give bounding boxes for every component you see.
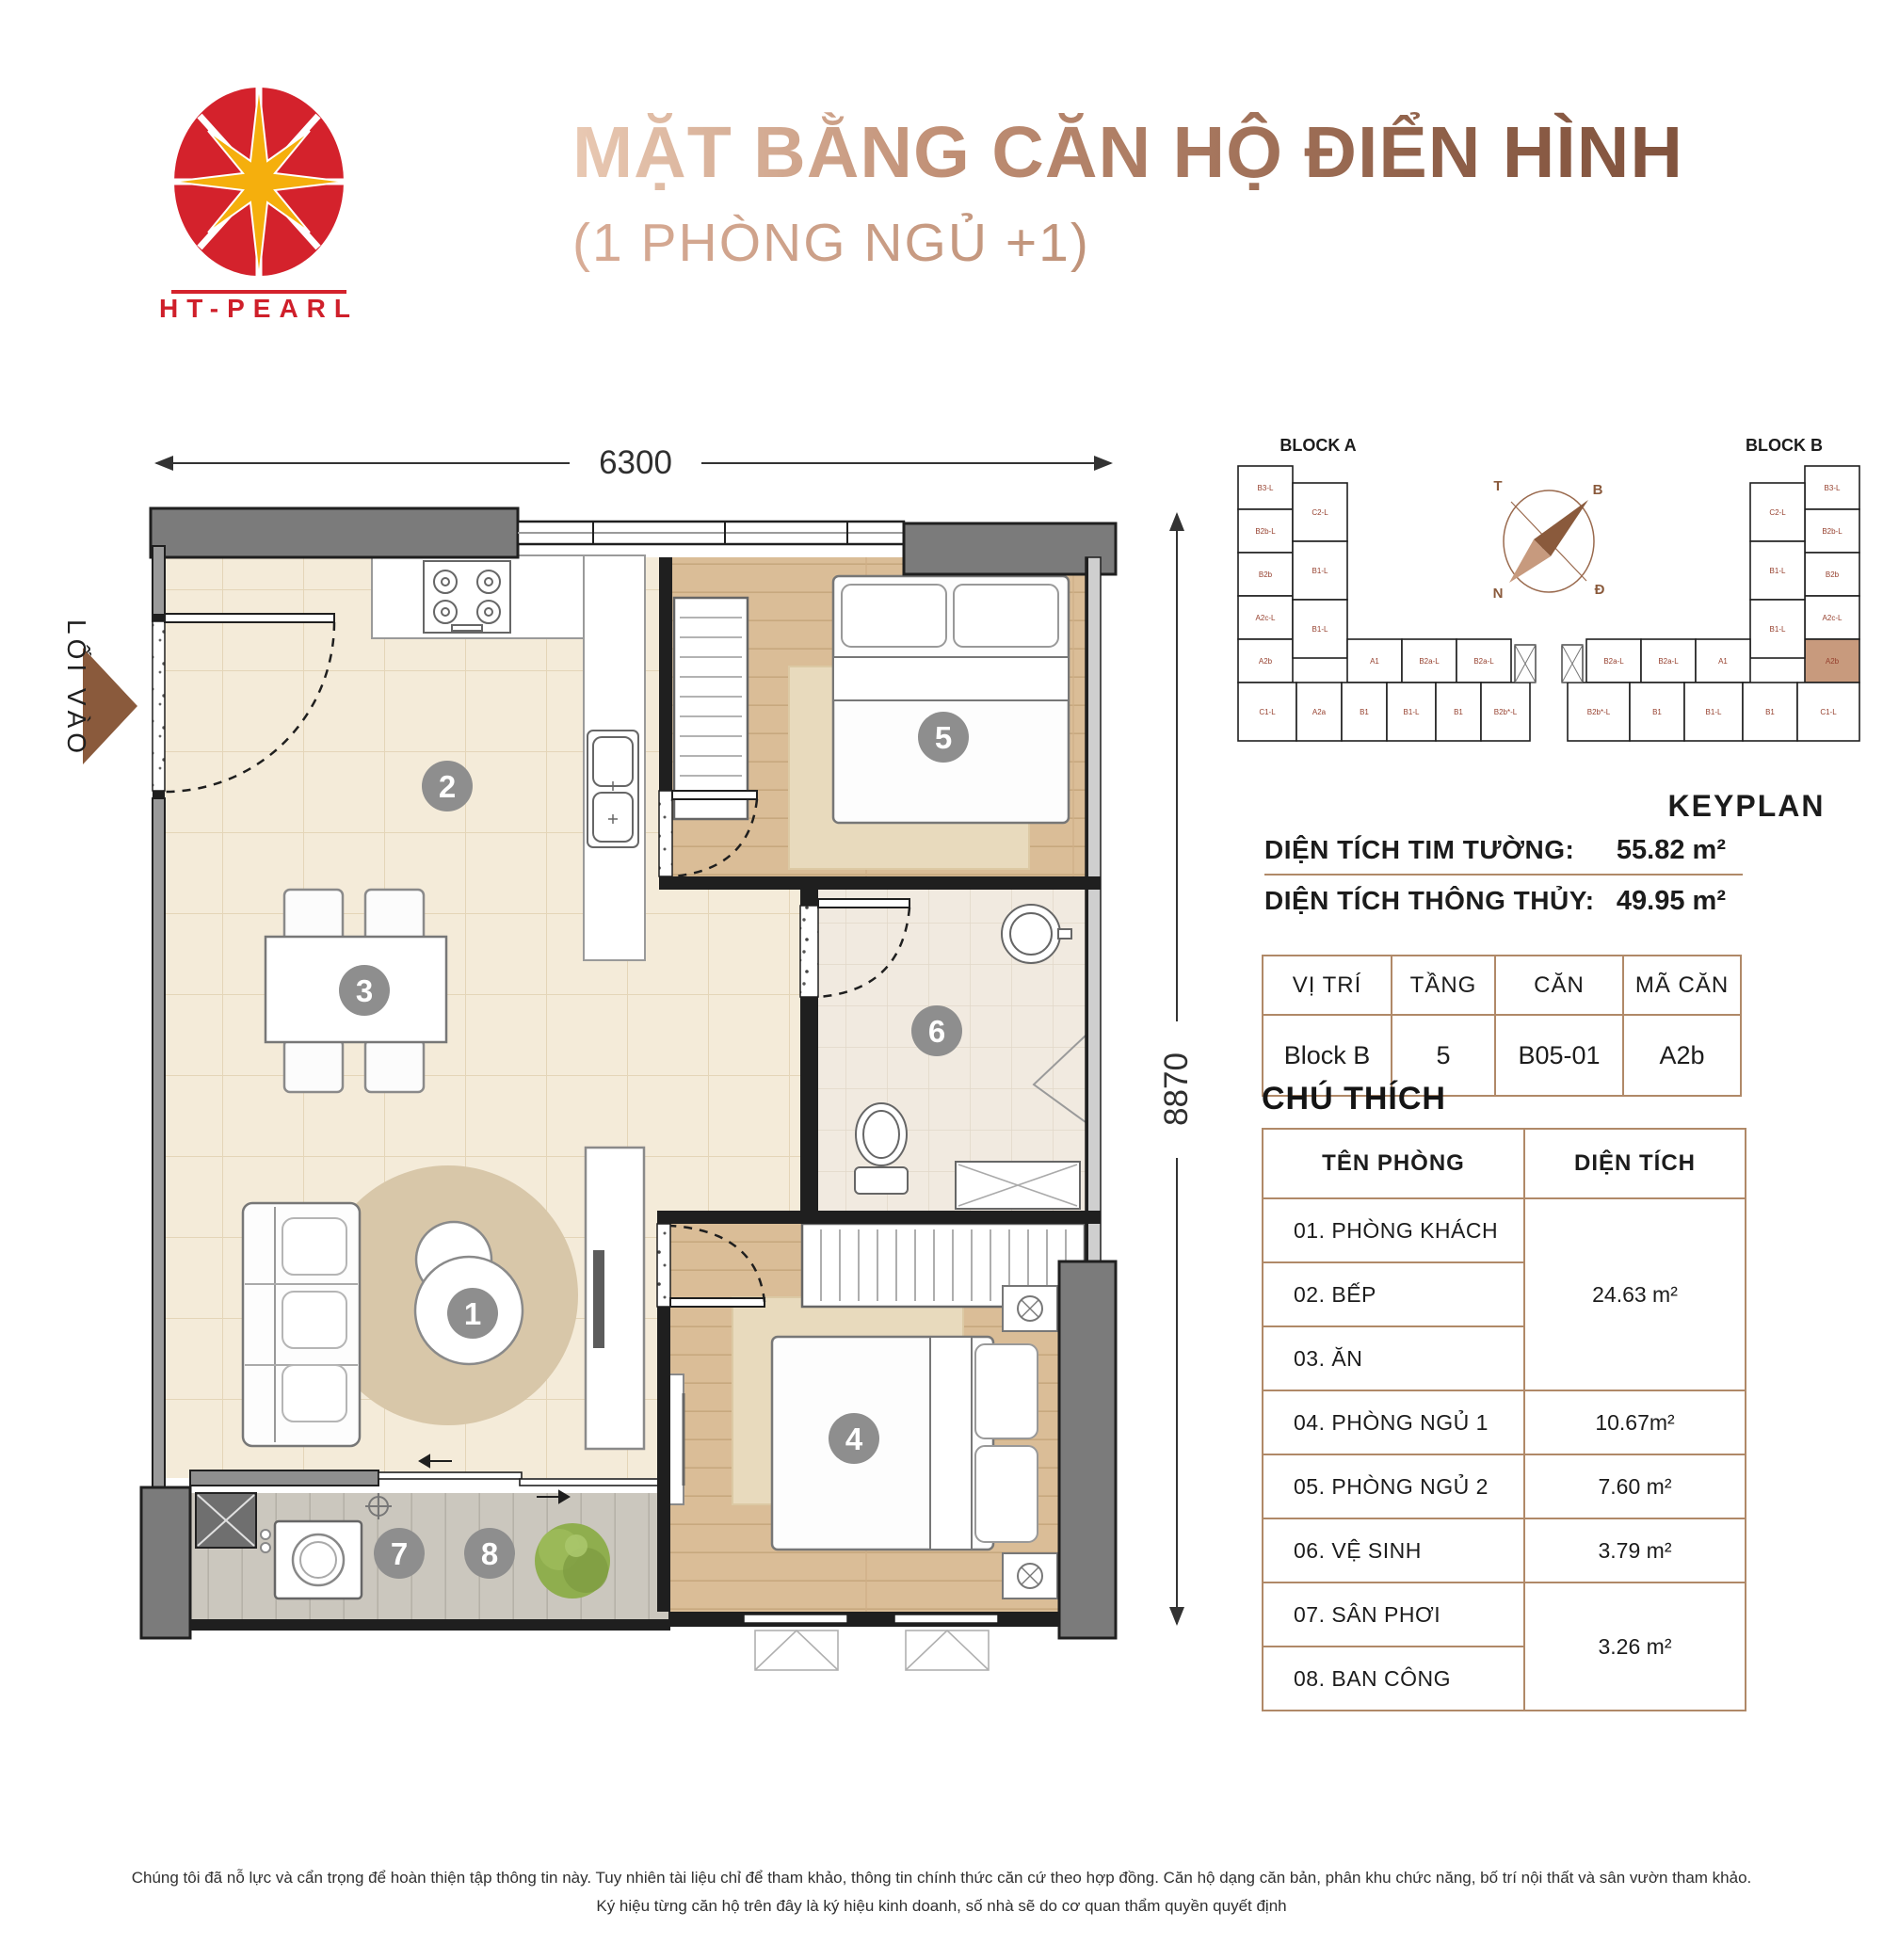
bedroom1-door-leaf bbox=[670, 1298, 764, 1307]
entrance-marker: LỐI VÀO bbox=[62, 619, 137, 764]
svg-text:8: 8 bbox=[481, 1536, 498, 1571]
keyplan: B3-LB2b-LB2bA2c-LA2bC2-LB1-LB1-LA1B2a-LB… bbox=[1219, 428, 1883, 838]
dimension-width: 6300 bbox=[154, 444, 1113, 481]
keyplan-unit-label: B1 bbox=[1360, 708, 1369, 716]
bedroom2-bed bbox=[833, 576, 1069, 823]
bedroom2-wardrobe bbox=[674, 598, 748, 819]
kitchen-sink-icon bbox=[587, 731, 638, 847]
ht-pearl-star-icon: HT-PEARL bbox=[132, 83, 386, 318]
floor-plan-svg: 1 2 3 4 5 6 7 8 6300 8870 LỐI VÀO bbox=[19, 424, 1229, 1671]
keyplan-unit-label: B2a-L bbox=[1603, 657, 1624, 666]
keyplan-unit-label: B2a-L bbox=[1419, 657, 1440, 666]
divider bbox=[1264, 874, 1743, 876]
legend-row: 01. PHÒNG KHÁCH 24.63 m² bbox=[1263, 1198, 1746, 1262]
keyplan-unit-label: B1-L bbox=[1770, 625, 1786, 634]
keyplan-block-b-label: BLOCK B bbox=[1746, 436, 1823, 455]
gross-area-value: 55.82 m² bbox=[1617, 835, 1726, 866]
keyplan-unit-label: B2b bbox=[1259, 570, 1273, 579]
stove-icon bbox=[424, 561, 510, 633]
room-name: 03. ĂN bbox=[1263, 1326, 1524, 1390]
keyplan-unit-label: B1 bbox=[1454, 708, 1463, 716]
keyplan-unit-label: B1-L bbox=[1312, 567, 1328, 575]
page-subtitle: (1 PHÒNG NGỦ +1) bbox=[572, 212, 1825, 274]
legend-title: CHÚ THÍCH bbox=[1262, 1081, 1446, 1117]
compass-letter: N bbox=[1493, 586, 1504, 602]
gross-area-label: DIỆN TÍCH TIM TƯỜNG: bbox=[1264, 835, 1574, 865]
badge-bathroom: 6 bbox=[911, 1005, 962, 1056]
room-name: 05. PHÒNG NGỦ 2 bbox=[1263, 1454, 1524, 1518]
entry-door-leaf bbox=[165, 614, 334, 622]
page-title: MẶT BẰNG CĂN HỘ ĐIỂN HÌNH bbox=[572, 111, 1825, 195]
room-area-merged: 24.63 m² bbox=[1524, 1198, 1746, 1390]
sofa bbox=[243, 1203, 360, 1446]
keyplan-unit-label: B2a-L bbox=[1473, 657, 1494, 666]
area-row-gross: DIỆN TÍCH TIM TƯỜNG: 55.82 m² bbox=[1264, 828, 1743, 872]
title-block: MẶT BẰNG CĂN HỘ ĐIỂN HÌNH (1 PHÒNG NGỦ +… bbox=[572, 111, 1825, 274]
keyplan-unit-label: B3-L bbox=[1258, 484, 1274, 492]
ht-pearl-logo: HT-PEARL bbox=[132, 83, 386, 318]
legend-row: 05. PHÒNG NGỦ 2 7.60 m² bbox=[1263, 1454, 1746, 1518]
keyplan-caption: KEYPLAN bbox=[1668, 789, 1826, 823]
tv-cabinet bbox=[586, 1148, 644, 1449]
svg-text:6300: 6300 bbox=[599, 444, 672, 481]
keyplan-unit-label: A2b bbox=[1826, 657, 1840, 666]
svg-text:2: 2 bbox=[439, 769, 456, 804]
col-header-location: VỊ TRÍ bbox=[1263, 956, 1392, 1015]
disclaimer-line2: Ký hiệu từng căn hộ trên đây là ký hiệu … bbox=[0, 1892, 1883, 1920]
compass-letter: T bbox=[1493, 478, 1502, 494]
keyplan-unit-label: C2-L bbox=[1769, 508, 1786, 517]
col-header-unit: CĂN bbox=[1495, 956, 1623, 1015]
keyplan-unit-label: B2b*-L bbox=[1587, 708, 1611, 716]
badge-bedroom1: 4 bbox=[829, 1413, 879, 1464]
svg-text:1: 1 bbox=[464, 1296, 481, 1331]
room-name: 04. PHÒNG NGỦ 1 bbox=[1263, 1390, 1524, 1454]
plant-icon bbox=[535, 1523, 610, 1599]
svg-text:3: 3 bbox=[356, 973, 373, 1008]
toilet-icon bbox=[855, 1103, 908, 1194]
svg-text:7: 7 bbox=[391, 1536, 408, 1571]
star-icon bbox=[172, 86, 346, 278]
badge-dining: 3 bbox=[339, 965, 390, 1016]
legend-row: 04. PHÒNG NGỦ 1 10.67m² bbox=[1263, 1390, 1746, 1454]
disclaimer: Chúng tôi đã nỗ lực và cẩn trọng để hoàn… bbox=[0, 1864, 1883, 1920]
bathroom-door-leaf bbox=[818, 899, 909, 908]
keyplan-unit-label: B2b bbox=[1826, 570, 1840, 579]
disclaimer-line1: Chúng tôi đã nỗ lực và cẩn trọng để hoàn… bbox=[0, 1864, 1883, 1892]
badge-bedroom2: 5 bbox=[918, 712, 969, 763]
keyplan-unit-label: B1-L bbox=[1706, 708, 1722, 716]
keyplan-svg: B3-LB2b-LB2bA2c-LA2bC2-LB1-LB1-LA1B2a-LB… bbox=[1219, 428, 1883, 838]
keyplan-unit-label: B2b-L bbox=[1822, 527, 1843, 536]
room-name: 01. PHÒNG KHÁCH bbox=[1263, 1198, 1524, 1262]
badge-kitchen: 2 bbox=[422, 761, 473, 811]
unit-table-header-row: VỊ TRÍ TẦNG CĂN MÃ CĂN bbox=[1263, 956, 1741, 1015]
svg-text:5: 5 bbox=[935, 720, 952, 755]
keyplan-unit-label: B1-L bbox=[1312, 625, 1328, 634]
room-name: 06. VỆ SINH bbox=[1263, 1518, 1524, 1582]
keyplan-unit-label: C2-L bbox=[1312, 508, 1328, 517]
keyplan-unit-label: C1-L bbox=[1259, 708, 1276, 716]
bedroom2-door-leaf bbox=[672, 791, 757, 799]
entrance-label: LỐI VÀO bbox=[62, 619, 92, 758]
window-symbols bbox=[755, 1631, 989, 1670]
legend-col-room: TÊN PHÒNG bbox=[1263, 1129, 1524, 1198]
washing-machine-icon bbox=[261, 1521, 362, 1599]
keyplan-unit-label: A1 bbox=[1718, 657, 1728, 666]
keyplan-unit-label: A2b bbox=[1259, 657, 1273, 666]
badge-balcony: 8 bbox=[464, 1528, 515, 1579]
legend-header-row: TÊN PHÒNG DIỆN TÍCH bbox=[1263, 1129, 1746, 1198]
area-row-net: DIỆN TÍCH THÔNG THỦY: 49.95 m² bbox=[1264, 879, 1743, 923]
area-info: DIỆN TÍCH TIM TƯỜNG: 55.82 m² DIỆN TÍCH … bbox=[1264, 828, 1743, 923]
room-area-merged: 3.26 m² bbox=[1524, 1582, 1746, 1711]
keyplan-unit-label: B3-L bbox=[1825, 484, 1841, 492]
floor-plan: 1 2 3 4 5 6 7 8 6300 8870 LỐI VÀO bbox=[19, 424, 1229, 1671]
badge-laundry: 7 bbox=[374, 1528, 425, 1579]
keyplan-unit-label: B2a-L bbox=[1658, 657, 1679, 666]
unit-info-table: VỊ TRÍ TẦNG CĂN MÃ CĂN Block B 5 B05-01 … bbox=[1262, 955, 1742, 1097]
svg-text:8870: 8870 bbox=[1158, 1052, 1195, 1126]
col-header-floor: TẦNG bbox=[1392, 956, 1495, 1015]
net-area-value: 49.95 m² bbox=[1617, 886, 1726, 917]
net-area-label: DIỆN TÍCH THÔNG THỦY: bbox=[1264, 886, 1595, 916]
legend-row: 07. SÂN PHƠI 3.26 m² bbox=[1263, 1582, 1746, 1647]
col-header-unit-code: MÃ CĂN bbox=[1623, 956, 1741, 1015]
svg-text:4: 4 bbox=[845, 1422, 863, 1456]
cell-unit: B05-01 bbox=[1495, 1015, 1623, 1096]
keyplan-unit-label: A2c-L bbox=[1823, 614, 1843, 622]
keyplan-unit-label: B1-L bbox=[1404, 708, 1420, 716]
compass-letter: Đ bbox=[1595, 582, 1605, 598]
room-area: 10.67m² bbox=[1524, 1390, 1746, 1454]
keyplan-unit-label: C1-L bbox=[1820, 708, 1837, 716]
keyplan-unit-label: B2b*-L bbox=[1494, 708, 1518, 716]
page: HT-PEARL MẶT BẰNG CĂN HỘ ĐIỂN HÌNH (1 PH… bbox=[0, 0, 1883, 1960]
room-name: 08. BAN CÔNG bbox=[1263, 1647, 1524, 1711]
room-area: 7.60 m² bbox=[1524, 1454, 1746, 1518]
keyplan-unit-label: A2a bbox=[1312, 708, 1327, 716]
keyplan-unit-label: B1 bbox=[1652, 708, 1662, 716]
dimension-height: 8870 bbox=[1158, 512, 1195, 1626]
keyplan-unit-label: A2c-L bbox=[1256, 614, 1276, 622]
badge-living: 1 bbox=[447, 1288, 498, 1339]
keyplan-unit-label: A1 bbox=[1370, 657, 1379, 666]
legend-table: TÊN PHÒNG DIỆN TÍCH 01. PHÒNG KHÁCH 24.6… bbox=[1262, 1128, 1746, 1711]
keyplan-unit-label: B1-L bbox=[1770, 567, 1786, 575]
room-name: 07. SÂN PHƠI bbox=[1263, 1582, 1524, 1647]
keyplan-unit-label: B1 bbox=[1765, 708, 1775, 716]
svg-text:6: 6 bbox=[928, 1014, 945, 1049]
room-name: 02. BẾP bbox=[1263, 1262, 1524, 1326]
keyplan-block-a-label: BLOCK A bbox=[1279, 436, 1356, 455]
keyplan-unit-label: B2b-L bbox=[1255, 527, 1276, 536]
room-area: 3.79 m² bbox=[1524, 1518, 1746, 1582]
legend-row: 06. VỆ SINH 3.79 m² bbox=[1263, 1518, 1746, 1582]
cell-unit-code: A2b bbox=[1623, 1015, 1741, 1096]
elevator-shaft-icon bbox=[196, 1493, 256, 1548]
compass-letter: B bbox=[1593, 482, 1603, 498]
logo-text: HT-PEARL bbox=[159, 294, 359, 318]
legend-col-area: DIỆN TÍCH bbox=[1524, 1129, 1746, 1198]
